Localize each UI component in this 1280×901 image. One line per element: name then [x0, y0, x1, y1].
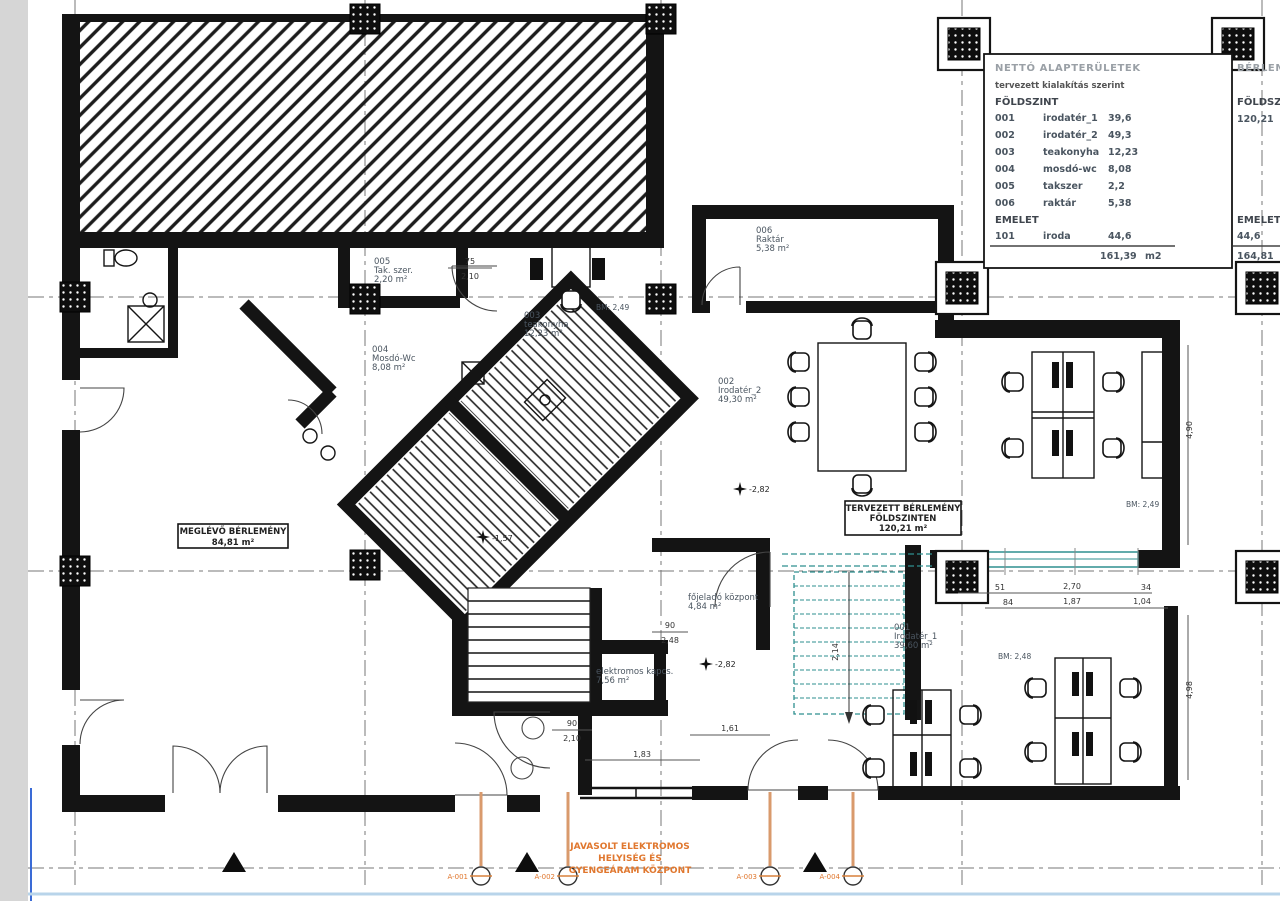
- stair-lower: [468, 588, 590, 702]
- dim-run1-c: 34: [1141, 583, 1151, 592]
- svg-text:101: 101: [995, 231, 1015, 242]
- dim-run1-a: 51: [995, 583, 1005, 592]
- dim-b2: 1,61: [721, 724, 739, 733]
- planned-tenancy-line3: 120,21 m²: [879, 524, 928, 534]
- bm-label-right-top: BM: 2,49: [1126, 500, 1159, 509]
- hatched-existing-block: [78, 14, 654, 232]
- svg-text:006: 006: [995, 198, 1015, 209]
- dim-doorMid-h: 2,10: [563, 734, 581, 743]
- svg-text:002: 002: [995, 130, 1015, 141]
- svg-text:raktár: raktár: [1043, 198, 1076, 209]
- left-margin-strip: [0, 0, 28, 901]
- electric-note-line1: JAVASOLT ELEKTROMOS: [569, 842, 690, 852]
- rental-total: 164,81: [1237, 251, 1274, 262]
- svg-text:49,3: 49,3: [1108, 130, 1131, 141]
- benchmark-label: A-003: [736, 873, 757, 881]
- dim-stair-w: 2,14: [831, 643, 840, 661]
- rental-ground-value: 120,21: [1237, 114, 1274, 125]
- benchmark-label: A-002: [534, 873, 555, 881]
- benchmark-label: A-004: [819, 873, 840, 881]
- level-value: -2,82: [715, 660, 736, 669]
- rental-upper-value: 44,6: [1237, 231, 1261, 242]
- schedule-ground-header: FÖLDSZINT: [995, 94, 1059, 108]
- level-value: -1,57: [492, 534, 513, 543]
- existing-tenancy-line2: 84,81 m²: [212, 538, 255, 548]
- rental-ground-label: FÖLDSZINT: [1237, 94, 1280, 108]
- dim-run1-b: 2,70: [1063, 582, 1081, 591]
- svg-text:teakonyha: teakonyha: [1043, 147, 1099, 158]
- svg-text:8,08: 8,08: [1108, 164, 1132, 175]
- schedule-total-unit: m2: [1145, 251, 1162, 262]
- dim-v1: 4,90: [1185, 421, 1194, 439]
- bm-label-teakonyha: BM: 2,49: [596, 303, 629, 312]
- schedule-total: 161,39: [1100, 251, 1137, 262]
- dim-run2-b: 1,87: [1063, 597, 1081, 606]
- svg-text:takszer: takszer: [1043, 181, 1083, 192]
- dim-doorStair-w: 90: [665, 621, 675, 630]
- schedule-title: NETTÓ ALAPTERÜLETEK: [995, 60, 1141, 74]
- svg-text:005: 005: [995, 181, 1015, 192]
- rental-upper-label: EMELET: [1237, 215, 1280, 226]
- svg-text:12,23: 12,23: [1108, 147, 1138, 158]
- area-schedule-table: NETTÓ ALAPTERÜLETEK tervezett kialakítás…: [984, 54, 1232, 268]
- svg-text:5,38: 5,38: [1108, 198, 1132, 209]
- dim-doorStair-h: 2,48: [661, 636, 679, 645]
- svg-text:004: 004: [995, 164, 1015, 175]
- benchmark-label: A-001: [447, 873, 468, 881]
- electric-note-line2: HELYISÉG ÉS: [598, 852, 662, 864]
- svg-text:001: 001: [995, 113, 1015, 124]
- rental-title: BÉRLEMÉNY: [1237, 61, 1280, 74]
- svg-text:irodatér_1: irodatér_1: [1043, 113, 1098, 124]
- existing-tenancy-line1: MEGLÉVŐ BÉRLEMÉNY: [180, 525, 288, 537]
- dim-run2-c: 1,04: [1133, 597, 1151, 606]
- svg-text:mosdó-wc: mosdó-wc: [1043, 164, 1097, 175]
- svg-text:003: 003: [995, 147, 1015, 158]
- planned-tenancy-line2: FÖLDSZINTEN: [870, 513, 937, 524]
- floorplan-drawing: A-001 A-002 A-003 A-004 005Tak. szer.2,2…: [0, 0, 1280, 901]
- planned-tenancy-line1: TERVEZETT BÉRLEMÉNY: [846, 502, 962, 514]
- schedule-subtitle: tervezett kialakítás szerint: [995, 81, 1124, 91]
- dim-door005-w: 75: [465, 257, 475, 266]
- level-value: -2,82: [749, 485, 770, 494]
- floorplan-sheet: A-001 A-002 A-003 A-004 005Tak. szer.2,2…: [0, 0, 1280, 901]
- svg-text:iroda: iroda: [1043, 231, 1071, 242]
- svg-text:irodatér_2: irodatér_2: [1043, 130, 1098, 141]
- dim-door005-h: 2,10: [461, 272, 479, 281]
- dim-v2: 4,98: [1185, 681, 1194, 699]
- svg-text:2,2: 2,2: [1108, 181, 1125, 192]
- schedule-upper-header: EMELET: [995, 215, 1039, 226]
- electric-note-line3: GYENGEÁRAM KÖZPONT: [569, 864, 692, 876]
- bm-label-right-bottom: BM: 2,48: [998, 652, 1031, 661]
- dim-doorMid-w: 90: [567, 719, 577, 728]
- dim-b1: 1,83: [633, 750, 651, 759]
- svg-text:39,6: 39,6: [1108, 113, 1132, 124]
- dim-run2-a: 84: [1003, 598, 1013, 607]
- svg-text:44,6: 44,6: [1108, 231, 1132, 242]
